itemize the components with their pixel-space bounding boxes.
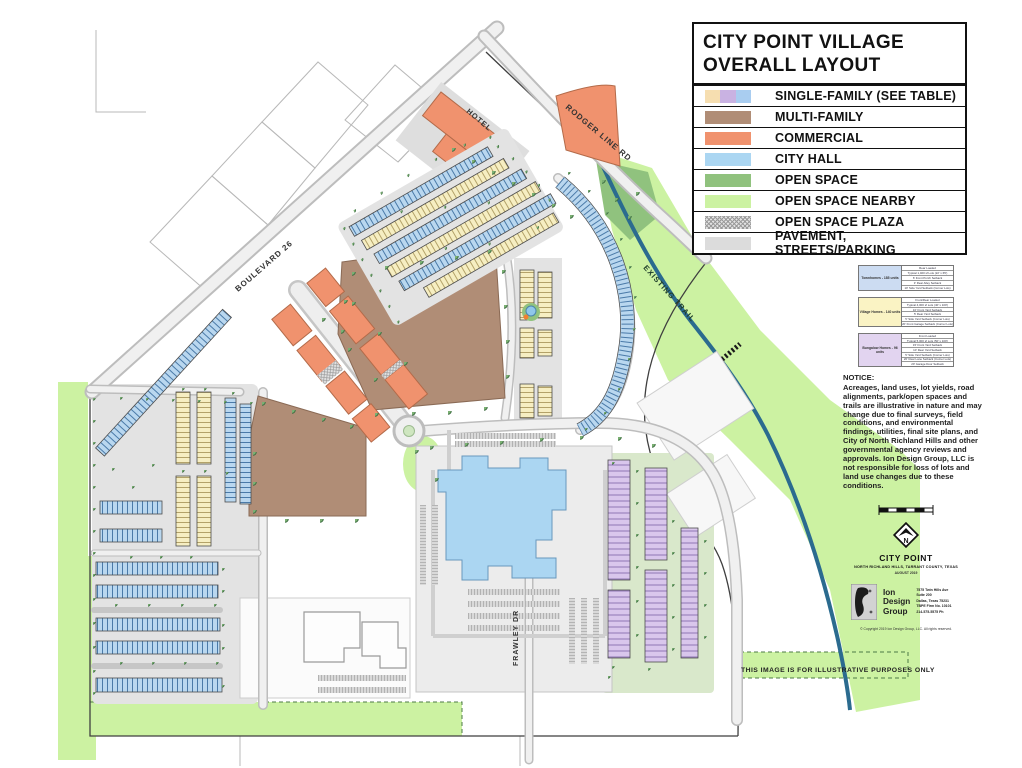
project-name: CITY POINT <box>845 553 967 563</box>
title-block: N CITY POINT NORTH RICHLAND HILLS, TARRA… <box>845 505 967 631</box>
site-plan-page: BOULEVARD 26 RODGER LINE RD HOTEL EXISTI… <box>0 0 1022 768</box>
unit-table-townhomes: Townhomes - 185 units Rear LoadedTypical… <box>858 265 954 291</box>
north-arrow-icon: N <box>892 521 920 549</box>
unit-table-bungalow-homes: Bungalow Homes - 96 units Front LoadedTy… <box>858 333 954 367</box>
svg-text:N: N <box>903 538 908 545</box>
roundabout-island <box>404 426 415 437</box>
unit-table-village-homes: Village Homes - 140 units Front/Rear Loa… <box>858 297 954 327</box>
legend-swatch-city-hall <box>705 153 751 166</box>
firm-logo-icon <box>851 584 877 620</box>
legend-row-commercial: COMMERCIAL <box>694 127 965 148</box>
project-date: AUGUST 2019 <box>845 571 967 575</box>
notice-block: NOTICE: Acreages, land uses, lot yields,… <box>843 374 982 490</box>
unit-table-bungalow-homes-rows: Front LoadedTypical 5,000 sf Lots (50' x… <box>902 334 953 366</box>
design-firm-block: Ion Design Group 7575 Twin Hills Ave Sui… <box>845 584 967 620</box>
firm-address: 7575 Twin Hills Ave Suite 200 Dallas, Te… <box>916 588 951 615</box>
legend-row-city-hall: CITY HALL <box>694 148 965 169</box>
legend-row-single-family: SINGLE-FAMILY (SEE TABLE) <box>694 85 965 106</box>
legend-swatch-open-space-nearby <box>705 195 751 208</box>
copyright-line: © Copyright 2019 Ion Design Group, LLC. … <box>845 627 967 631</box>
legend-swatch-multi-family <box>705 111 751 124</box>
page-title: CITY POINT VILLAGE OVERALL LAYOUT <box>694 24 965 85</box>
disclaimer-text: THIS IMAGE IS FOR ILLUSTRATIVE PURPOSES … <box>741 667 935 674</box>
legend-swatch-pavement <box>705 237 751 250</box>
unit-table-townhomes-rows: Rear LoadedTypical 1,400 sf Lots (22' x … <box>902 266 953 290</box>
legend-swatch-open-space <box>705 174 751 187</box>
legend-row-open-space-nearby: OPEN SPACE NEARBY <box>694 190 965 211</box>
scale-bar-icon <box>878 505 934 515</box>
legend-swatch-open-space-plaza <box>705 216 751 229</box>
project-location: NORTH RICHLAND HILLS, TARRANT COUNTY, TE… <box>845 565 967 569</box>
umbrella-dot <box>524 315 529 320</box>
legend-panel: CITY POINT VILLAGE OVERALL LAYOUT SINGLE… <box>692 22 967 255</box>
legend-row-multi-family: MULTI-FAMILY <box>694 106 965 127</box>
legend-swatch-commercial <box>705 132 751 145</box>
firm-name: Ion Design Group <box>883 588 910 616</box>
legend-row-open-space: OPEN SPACE <box>694 169 965 190</box>
pool <box>526 306 536 316</box>
unit-table-village-homes-rows: Front/Rear LoadedTypical 4,000 sf Lots (… <box>902 298 953 326</box>
notice-body: Acreages, land uses, lot yields, road al… <box>843 384 982 491</box>
street-label-frawley-dr: FRAWLEY DR <box>513 610 520 666</box>
legend-row-pavement: PAVEMENT, STREETS/PARKING <box>694 232 965 253</box>
legend-swatch-single-family <box>705 90 751 103</box>
notice-heading: NOTICE: <box>843 374 982 383</box>
